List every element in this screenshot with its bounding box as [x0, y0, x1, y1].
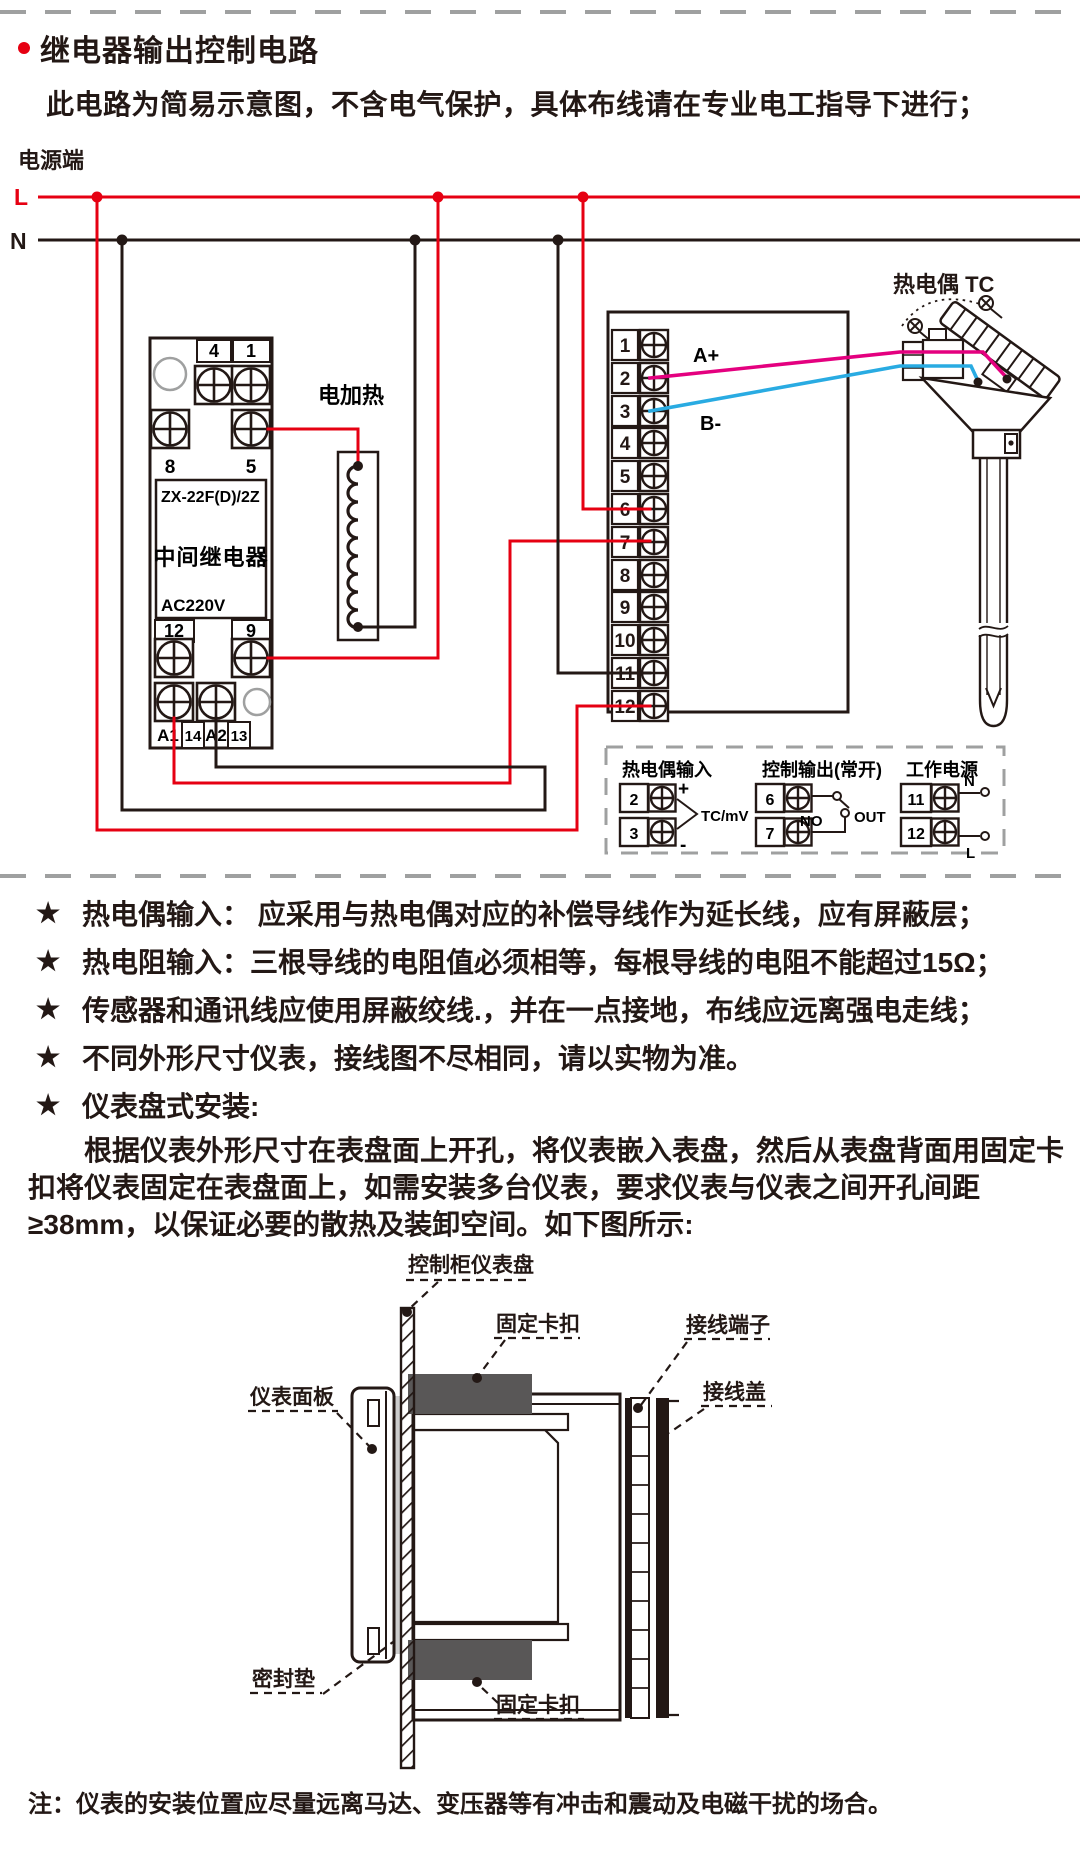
- relay-terminal-a1: A1: [157, 726, 179, 745]
- tc-probe: [979, 458, 1009, 726]
- heater: 电加热: [318, 383, 384, 640]
- star-icon: ★: [36, 994, 82, 1025]
- note-item: ★仪表盘式安装:: [36, 1081, 1066, 1129]
- cabinet-panel: [401, 1308, 414, 1768]
- page-title: 继电器输出控制电路: [40, 26, 319, 70]
- wiring-diagram: 电源端 L N 4 1 8 5 ZX-22F(D)/2Z 中间继电器 AC220…: [0, 110, 1080, 885]
- note-text: 仪表盘式安装:: [82, 1085, 259, 1125]
- legend-tc-input: 热电偶输入 2 3 + - TC/mV: [620, 759, 749, 856]
- note-text: 热电偶输入： 应采用与热电偶对应的补偿导线作为延长线，应有屏蔽层；: [82, 893, 986, 933]
- installation-diagram: 控制柜仪表盘 固定卡扣 接线端子 接线盖 仪表面板 密封垫 固定卡扣: [0, 1240, 800, 1785]
- top-dashed-separator: [0, 10, 1080, 14]
- tc-gland-nut: [903, 342, 923, 380]
- note-text: 传感器和通讯线应使用屏蔽绞线.，并在一点接地，布线应远离强电走线；: [82, 989, 986, 1029]
- relay-screw-8: [151, 410, 189, 448]
- section-header: 继电器输出控制电路 此电路为简易示意图，不含电气保护，具体布线请在专业电工指导下…: [18, 26, 1058, 123]
- note-text: 热电阻输入：三根导线的电阻值必须相等，每根导线的电阻不能超过15Ω；: [82, 941, 1004, 981]
- red-bullet-icon: [18, 42, 30, 54]
- middle-dashed-separator: [0, 874, 1080, 878]
- label-terminal-block: 接线端子: [686, 1313, 770, 1337]
- label-gasket: 密封垫: [252, 1667, 315, 1691]
- power-terminal-label: 电源端: [18, 148, 84, 173]
- terminal-cover: [656, 1398, 669, 1718]
- legend-tc-plus: +: [678, 779, 689, 800]
- label-cabinet-panel: 控制柜仪表盘: [408, 1253, 534, 1277]
- star-icon: ★: [36, 1090, 82, 1121]
- legend-out-out: OUT: [854, 809, 886, 826]
- relay-screw-a1: [155, 683, 193, 721]
- relay-terminal-14: 14: [185, 728, 202, 745]
- thermocouple-label: 热电偶 TC: [893, 272, 995, 297]
- front-bezel: [352, 1388, 394, 1662]
- note-text: 不同外形尺寸仪表，接线图不尽相同，请以实物为准。: [82, 1037, 754, 1077]
- relay-screw-9: [232, 639, 270, 677]
- relay-terminal-13: 13: [231, 728, 248, 745]
- note-item: ★热电偶输入： 应采用与热电偶对应的补偿导线作为延长线，应有屏蔽层；: [36, 889, 1066, 937]
- legend-out-top: 6: [766, 792, 775, 809]
- legend-control-output: 控制输出(常开) 6 7 NO OUT: [756, 759, 886, 846]
- star-notes: ★热电偶输入： 应采用与热电偶对应的补偿导线作为延长线，应有屏蔽层； ★热电阻输…: [36, 889, 1066, 1129]
- inst-terminal-5: 5: [620, 467, 631, 488]
- label-front-bezel: 仪表面板: [249, 1386, 335, 1409]
- legend-box: 热电偶输入 2 3 + - TC/mV 控制输出(常开) 6 7: [606, 747, 1004, 862]
- legend-tc-top: 2: [630, 792, 639, 809]
- relay-module: 4 1 8 5 ZX-22F(D)/2Z 中间继电器 AC220V 12 9 A…: [150, 338, 272, 748]
- relay-name: 中间继电器: [153, 545, 268, 570]
- label-terminal-cover: 接线盖: [703, 1380, 766, 1404]
- legend-out-no: NO: [800, 813, 823, 830]
- legend-tc-input-title: 热电偶输入: [622, 759, 712, 780]
- relay-screw-a2: [197, 683, 235, 721]
- manual-page: 继电器输出控制电路 此电路为简易示意图，不含电气保护，具体布线请在专业电工指导下…: [0, 0, 1080, 1860]
- relay-screw-12: [155, 639, 193, 677]
- fixing-clip-bottom: [408, 1640, 532, 1680]
- install-paragraph: 根据仪表外形尺寸在表盘面上开孔，将仪表嵌入表盘，然后从表盘背面用固定卡扣将仪表固…: [28, 1132, 1068, 1243]
- wire-b-label: B-: [700, 413, 721, 435]
- neutral-label: N: [10, 228, 27, 254]
- label-fixing-clip-bottom: 固定卡扣: [496, 1693, 580, 1717]
- relay-terminal-8: 8: [165, 457, 176, 478]
- footnote: 注：仪表的安装位置应尽量远离马达、变压器等有冲击和震动及电磁干扰的场合。: [28, 1784, 1068, 1819]
- heater-label: 电加热: [318, 383, 384, 408]
- inst-terminal-10: 10: [614, 631, 635, 652]
- relay-terminal-5: 5: [246, 457, 257, 478]
- note-item: ★不同外形尺寸仪表，接线图不尽相同，请以实物为准。: [36, 1033, 1066, 1081]
- relay-terminal-4: 4: [209, 341, 219, 361]
- legend-power-n: N: [964, 773, 975, 790]
- relay-screw-4: [195, 366, 233, 404]
- star-icon: ★: [36, 1042, 82, 1073]
- tc-cap-screw-right: [979, 296, 1002, 318]
- relay-terminal-1: 1: [246, 341, 256, 361]
- relay-screw-1: [232, 366, 270, 404]
- star-icon: ★: [36, 898, 82, 929]
- wire-a-label: A+: [693, 345, 719, 367]
- legend-power-top: 11: [908, 792, 925, 809]
- legend-power-bottom: 12: [907, 826, 925, 843]
- instrument-inner-case: [413, 1430, 558, 1622]
- legend-tc-bottom: 3: [630, 826, 639, 843]
- inst-terminal-2: 2: [620, 369, 631, 390]
- inst-terminal-4: 4: [620, 434, 631, 455]
- relay-screw-5: [232, 410, 270, 448]
- thermocouple: 热电偶 TC: [893, 272, 1061, 726]
- label-fixing-clip-top: 固定卡扣: [496, 1312, 580, 1336]
- inst-terminal-9: 9: [620, 598, 631, 619]
- live-label: L: [14, 184, 28, 210]
- legend-tc-signal: TC/mV: [701, 808, 749, 825]
- inst-terminal-8: 8: [620, 566, 631, 587]
- tc-head-screw-mount: [929, 329, 946, 340]
- inst-terminal-7: 7: [620, 533, 631, 554]
- tc-head-block: [923, 340, 963, 378]
- legend-out-bottom: 7: [766, 826, 775, 843]
- legend-tc-minus: -: [680, 835, 686, 856]
- inst-terminal-1: 1: [620, 336, 631, 357]
- note-item: ★传感器和通讯线应使用屏蔽绞线.，并在一点接地，布线应远离强电走线；: [36, 985, 1066, 1033]
- clip-slot-top: [413, 1414, 568, 1430]
- note-item: ★热电阻输入：三根导线的电阻值必须相等，每根导线的电阻不能超过15Ω；: [36, 937, 1066, 985]
- legend-power-l: L: [966, 845, 975, 862]
- star-icon: ★: [36, 946, 82, 977]
- legend-out-title: 控制输出(常开): [762, 759, 882, 780]
- terminal-strip: [625, 1398, 649, 1718]
- clip-slot-bottom: [413, 1624, 568, 1640]
- inst-terminal-3: 3: [620, 402, 631, 423]
- relay-model: ZX-22F(D)/2Z: [161, 489, 260, 506]
- legend-power: 工作电源 11 12 N L: [901, 759, 989, 862]
- fixing-clip-top: [408, 1374, 532, 1414]
- relay-voltage: AC220V: [161, 596, 226, 615]
- instrument-terminal-block: 1 2 3 4 5 6 7 8 9 10 11 12: [608, 312, 848, 721]
